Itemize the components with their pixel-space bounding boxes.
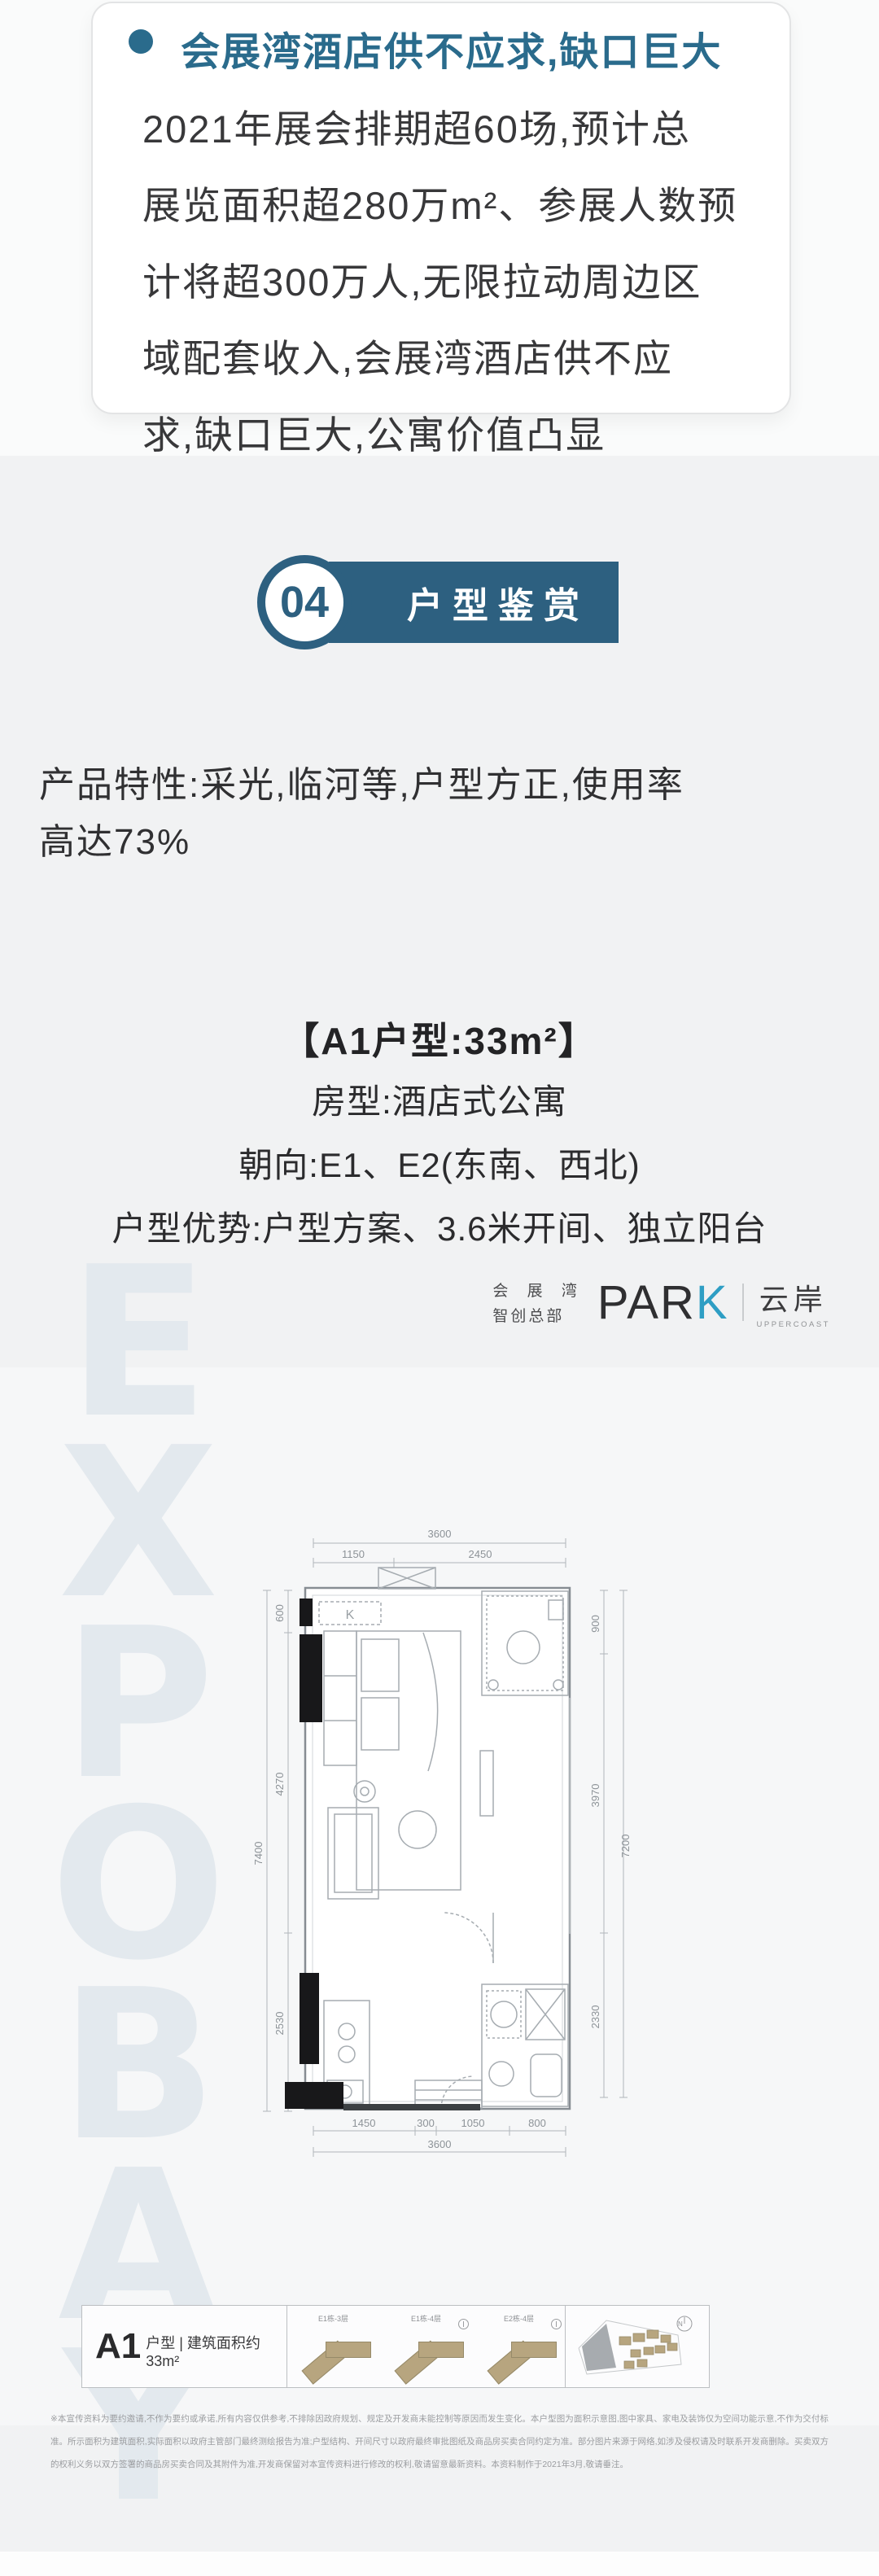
features-line: 产品特性:采光,临河等,户型方正,使用率 xyxy=(39,757,853,814)
disclaimer-text: ※本宣传资料为要约邀请,不作为要约或承诺,所有内容仅供参考,不排除因政府规划、规… xyxy=(50,2408,829,2476)
body-line: 域配套收入,会展湾酒店供不应 xyxy=(142,321,785,397)
siteplan-cell: N xyxy=(566,2306,709,2387)
dim-right-seg: 3970 xyxy=(589,1784,601,1808)
wing-bar xyxy=(326,2342,371,2358)
body-line: 计将超300万人,无限拉动周边区 xyxy=(142,244,785,321)
bullet-dot-icon xyxy=(129,29,153,54)
wing-label: E1栋-4层 xyxy=(386,2313,467,2324)
bottom-wall-fill xyxy=(343,2104,480,2110)
brand-logo: 会 展 湾 智创总部 PARK 云岸 UPPERCOAST xyxy=(488,1268,830,1336)
dim-bottom-seg: 1450 xyxy=(352,2117,376,2129)
logo-divider xyxy=(742,1284,744,1321)
logo-park-k: K xyxy=(696,1276,729,1329)
product-features: 产品特性:采光,临河等,户型方正,使用率 高达73% xyxy=(39,757,853,871)
unit-detail-row: 房型:酒店式公寓 xyxy=(0,1070,879,1134)
unit-details: 房型:酒店式公寓 朝向:E1、E2(东南、西北) 户型优势:户型方案、3.6米开… xyxy=(0,1070,879,1261)
unit-name-cell: A1 户型 | 建筑面积约33m² xyxy=(82,2306,287,2387)
dim-top-seg: 2450 xyxy=(469,1548,492,1560)
wing-label: E2栋-4层 xyxy=(479,2313,560,2324)
dim-right-outer: 7200 xyxy=(619,1835,632,1858)
dim-left-seg: 600 xyxy=(273,1604,286,1622)
body-line: 求,缺口巨大,公寓价值凸显 xyxy=(142,397,785,474)
features-line: 高达73% xyxy=(39,814,853,871)
logo-cn-top: 会 展 湾 xyxy=(492,1279,584,1301)
wing-diagram: E1栋-4层 xyxy=(386,2311,467,2382)
dim-top-total: 3600 xyxy=(428,1528,452,1540)
compass-icon xyxy=(551,2319,562,2329)
wing-diagram: E2栋-4层 xyxy=(479,2311,560,2382)
wing-label: E1栋-3层 xyxy=(293,2313,374,2324)
unit-title: 【A1户型:33m²】 xyxy=(0,1012,879,1065)
logo-brand-block: 云岸 UPPERCOAST xyxy=(757,1276,830,1329)
dim-bottom-seg: 300 xyxy=(417,2117,435,2129)
siteplan-gray-block xyxy=(582,2324,616,2371)
north-label: N xyxy=(678,2320,683,2328)
unit-name-rest: 户型 | 建筑面积约33m² xyxy=(146,2332,286,2370)
logo-park-wordmark: PARK xyxy=(597,1275,729,1330)
logo-park-main: PAR xyxy=(597,1276,696,1329)
dim-right-seg: 2330 xyxy=(589,2005,601,2029)
kitchen-k-label: K xyxy=(346,1608,355,1622)
dim-left-outer: 7400 xyxy=(252,1842,265,1865)
building-wings-cell: E1栋-3层 E1栋-4层 E2栋-4层 xyxy=(287,2306,566,2387)
body-line: 2021年展会排期超60场,预计总 xyxy=(142,91,785,168)
logo-cn-bottom: 智创总部 xyxy=(492,1304,584,1326)
wing-diagram: E1栋-3层 xyxy=(293,2311,374,2382)
footer-strip xyxy=(0,2552,879,2576)
card-headline: 会展湾酒店供不应求,缺口巨大 xyxy=(181,20,775,77)
siteplan-mini-map: N xyxy=(574,2312,701,2381)
dim-top-seg: 1150 xyxy=(342,1548,365,1560)
dim-left-seg: 4270 xyxy=(273,1773,286,1796)
promo-page: EXPOBAY 会展湾酒店供不应求,缺口巨大 2021年展会排期超60场,预计总… xyxy=(0,0,879,2576)
unit-detail-row: 户型优势:户型方案、3.6米开间、独立阳台 xyxy=(0,1197,879,1261)
outer-walls xyxy=(305,1588,570,2109)
dim-bottom-seg: 1050 xyxy=(461,2117,485,2129)
logo-brand-cn: 云岸 xyxy=(757,1276,830,1319)
unit-summary-table: A1 户型 | 建筑面积约33m² E1栋-3层 E1栋-4层 E2栋-4层 xyxy=(81,2305,710,2388)
card-body-text: 2021年展会排期超60场,预计总 展览面积超280万m²、参展人数预 计将超3… xyxy=(142,91,785,474)
wing-bar xyxy=(511,2342,557,2358)
body-line: 展览面积超280万m²、参展人数预 xyxy=(142,168,785,244)
wing-bar xyxy=(418,2342,464,2358)
floorplan-svg: 3600 1150 2450 7400 600 4270 2530 900 39… xyxy=(228,1511,651,2194)
siteplan-tan-blocks xyxy=(619,2330,677,2368)
dim-bottom-total: 3600 xyxy=(428,2138,452,2150)
dim-left-seg: 2530 xyxy=(273,2012,286,2036)
logo-cn-block: 会 展 湾 智创总部 xyxy=(492,1279,584,1326)
unit-detail-row: 朝向:E1、E2(东南、西北) xyxy=(0,1134,879,1197)
dim-bottom-seg: 800 xyxy=(528,2117,546,2129)
logo-brand-en: UPPERCOAST xyxy=(757,1320,830,1329)
unit-name-big: A1 xyxy=(95,2326,141,2367)
compass-icon xyxy=(458,2319,469,2329)
section-title-banner: 户型鉴赏 xyxy=(329,562,619,643)
dim-right-seg: 900 xyxy=(589,1615,601,1633)
section-number-badge: 04 xyxy=(257,555,352,649)
floorplan-drawing: 3600 1150 2450 7400 600 4270 2530 900 39… xyxy=(228,1511,651,2194)
